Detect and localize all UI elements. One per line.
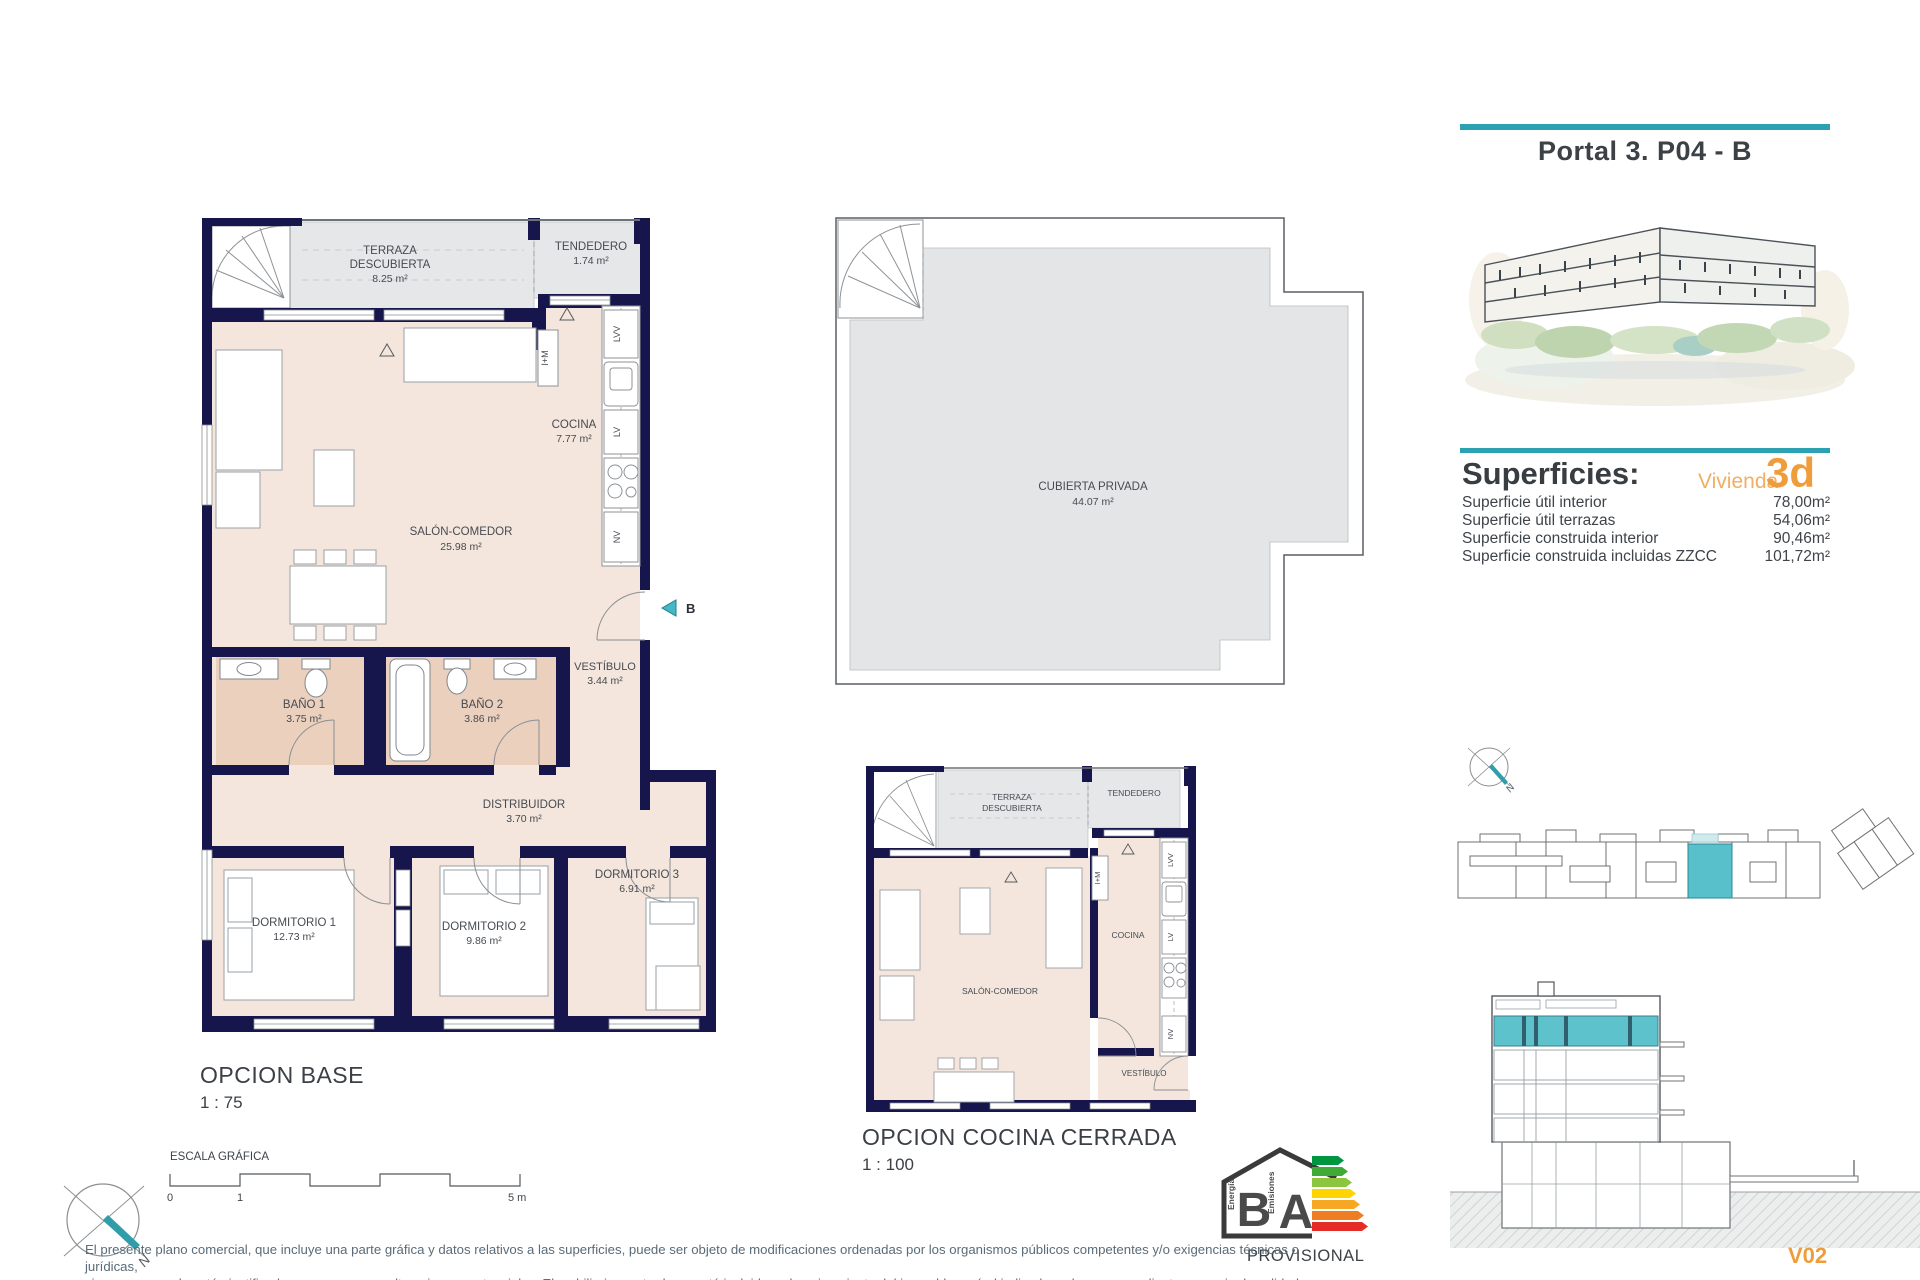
energy-arrow-bars xyxy=(1312,1156,1368,1231)
stairs xyxy=(212,226,290,308)
room-tendedero-name: TENDEDERO xyxy=(555,241,627,253)
scale-bar-ruler xyxy=(170,1174,520,1186)
kitchen-plan-scale: 1 : 100 xyxy=(862,1155,1177,1175)
room-dorm2-name: DORMITORIO 2 xyxy=(442,921,526,933)
room-tendedero-area: 1.74 m² xyxy=(573,255,609,267)
scale-tick-1: 1 xyxy=(237,1192,243,1204)
superficies-row-value: 101,72m² xyxy=(1765,548,1830,566)
roof-stairs xyxy=(838,220,923,318)
site-unit-highlight xyxy=(1688,844,1732,898)
sp-lv-label: LV xyxy=(1166,933,1175,942)
room-terraza-area: 8.25 m² xyxy=(372,273,408,285)
section-balconies xyxy=(1660,1042,1684,1115)
superficies-row-value: 90,46m² xyxy=(1773,530,1830,548)
room-bano1-area: 3.75 m² xyxy=(286,713,322,725)
kitchen-plan-title-block: OPCION COCINA CERRADA 1 : 100 xyxy=(862,1124,1177,1175)
version-label: V02 xyxy=(1788,1243,1827,1269)
superficies-row-label: Superficie útil terrazas xyxy=(1462,512,1615,530)
footer-disclaimer: El presente plano comercial, que incluye… xyxy=(85,1241,1325,1280)
entrance-marker: B xyxy=(662,600,695,616)
sp-lvv-label: LVV xyxy=(1166,853,1175,867)
plan-sheet: LVV LV NV I+M xyxy=(0,0,1920,1280)
section-basement xyxy=(1502,1142,1730,1228)
site-plan-outline xyxy=(1458,830,1820,898)
sp-cocina-name: COCINA xyxy=(1111,930,1144,940)
sp-tendedero-name: TENDEDERO xyxy=(1107,788,1161,798)
sp-im-label: I+M xyxy=(1093,872,1102,885)
section-deck xyxy=(1730,1176,1858,1182)
room-dorm2-area: 9.86 m² xyxy=(466,935,502,947)
building-section xyxy=(1450,980,1920,1250)
energy-letter-a: A xyxy=(1279,1186,1314,1239)
roof-plan-drawing: CUBIERTA PRIVADA 44.07 m² xyxy=(828,210,1373,690)
energy-label: B A Energía Emisiones xyxy=(1214,1144,1379,1244)
room-distribuidor-area: 3.70 m² xyxy=(506,813,542,825)
room-bano1-name: BAÑO 1 xyxy=(283,698,325,711)
room-salon-name: SALÓN-COMEDOR xyxy=(410,525,513,538)
vivienda-code: 3d xyxy=(1766,452,1815,494)
teal-rule-top xyxy=(1460,124,1830,130)
superficies-row-label: Superficie construida incluidas ZZCC xyxy=(1462,548,1717,566)
superficies-row: Superficie útil terrazas 54,06m² xyxy=(1462,512,1830,530)
appliance-nv-label: NV xyxy=(612,531,622,544)
kitchen-plan-stairs xyxy=(870,770,936,850)
room-dorm3-area: 6.91 m² xyxy=(619,883,655,895)
room-cocina-name: COCINA xyxy=(552,419,597,431)
scale-tick-5: 5 m xyxy=(508,1192,526,1204)
appliance-lvv-label: LVV xyxy=(612,326,622,342)
room-bano2-name: BAÑO 2 xyxy=(461,698,503,711)
building-sketch xyxy=(1455,170,1855,425)
appliance-lv-label: LV xyxy=(612,427,622,437)
appliance-im-label: I+M xyxy=(540,350,550,365)
base-plan-drawing: LVV LV NV I+M xyxy=(194,210,728,1036)
entrance-label: B xyxy=(686,601,695,616)
room-terraza-name2: DESCUBIERTA xyxy=(350,259,431,271)
site-annex xyxy=(1825,806,1914,889)
sp-terraza-name2: DESCUBIERTA xyxy=(982,803,1042,813)
room-vestibulo-name: VESTÍBULO xyxy=(574,660,636,673)
kitchen-plan-title: OPCION COCINA CERRADA xyxy=(862,1124,1177,1151)
scale-tick-0: 0 xyxy=(167,1192,173,1204)
energy-energia-caption: Energía xyxy=(1226,1179,1236,1210)
section-floor-highlight xyxy=(1494,1016,1658,1046)
room-cocina-area: 7.77 m² xyxy=(556,433,592,445)
room-bano2-area: 3.86 m² xyxy=(464,713,500,725)
sp-salon-name: SALÓN-COMEDOR xyxy=(962,986,1038,996)
scale-bar-label: ESCALA GRÁFICA xyxy=(170,1150,269,1163)
sp-vestibulo-name: VESTÍBULO xyxy=(1122,1069,1167,1078)
disclaimer-line-1: El presente plano comercial, que incluye… xyxy=(85,1241,1325,1275)
superficies-row-value: 54,06m² xyxy=(1773,512,1830,530)
superficies-row: Superficie construida interior 90,46m² xyxy=(1462,530,1830,548)
room-salon-area: 25.98 m² xyxy=(440,541,482,553)
superficies-row: Superficie construida incluidas ZZCC 101… xyxy=(1462,548,1830,566)
sp-terraza-name1: TERRAZA xyxy=(992,792,1032,802)
sketch-building xyxy=(1485,228,1815,322)
base-plan-scale: 1 : 75 xyxy=(200,1093,364,1113)
room-dorm1-area: 12.73 m² xyxy=(273,931,315,943)
site-unit-terrace-highlight xyxy=(1692,834,1718,842)
room-dorm3-name: DORMITORIO 3 xyxy=(595,869,679,881)
superficies-row-label: Superficie útil interior xyxy=(1462,494,1607,512)
page-title: Portal 3. P04 - B xyxy=(1460,136,1830,167)
compass-side-icon: N xyxy=(1462,742,1522,802)
base-plan-title: OPCION BASE xyxy=(200,1062,364,1089)
site-plan xyxy=(1450,806,1920,918)
entrance-arrow-icon xyxy=(662,600,676,616)
room-cubierta-area: 44.07 m² xyxy=(1072,496,1114,508)
disclaimer-line-2: siempre y cuando estén justificados y no… xyxy=(85,1275,1325,1280)
room-cubierta-name: CUBIERTA PRIVADA xyxy=(1038,481,1148,493)
room-dorm1-name: DORMITORIO 1 xyxy=(252,917,336,929)
room-vestibulo-area: 3.44 m² xyxy=(587,675,623,687)
superficies-row: Superficie útil interior 78,00m² xyxy=(1462,494,1830,512)
superficies-heading: Superficies: xyxy=(1462,456,1639,492)
kitchen-plan-drawing: LVV LV NV I+M TERRAZA DESCUBIERTA TENDED… xyxy=(860,760,1205,1112)
superficies-row-label: Superficie construida interior xyxy=(1462,530,1658,548)
base-plan-title-block: OPCION BASE 1 : 75 xyxy=(200,1062,364,1113)
energy-emisiones-caption: Emisiones xyxy=(1266,1171,1276,1214)
scale-bar: ESCALA GRÁFICA 0 1 5 m xyxy=(166,1146,546,1204)
superficies-rows: Superficie útil interior 78,00m² Superfi… xyxy=(1462,494,1830,566)
sp-nv-label: NV xyxy=(1166,1029,1175,1039)
room-terraza-name1: TERRAZA xyxy=(363,245,417,257)
superficies-row-value: 78,00m² xyxy=(1773,494,1830,512)
room-distribuidor-name: DISTRIBUIDOR xyxy=(483,799,565,811)
